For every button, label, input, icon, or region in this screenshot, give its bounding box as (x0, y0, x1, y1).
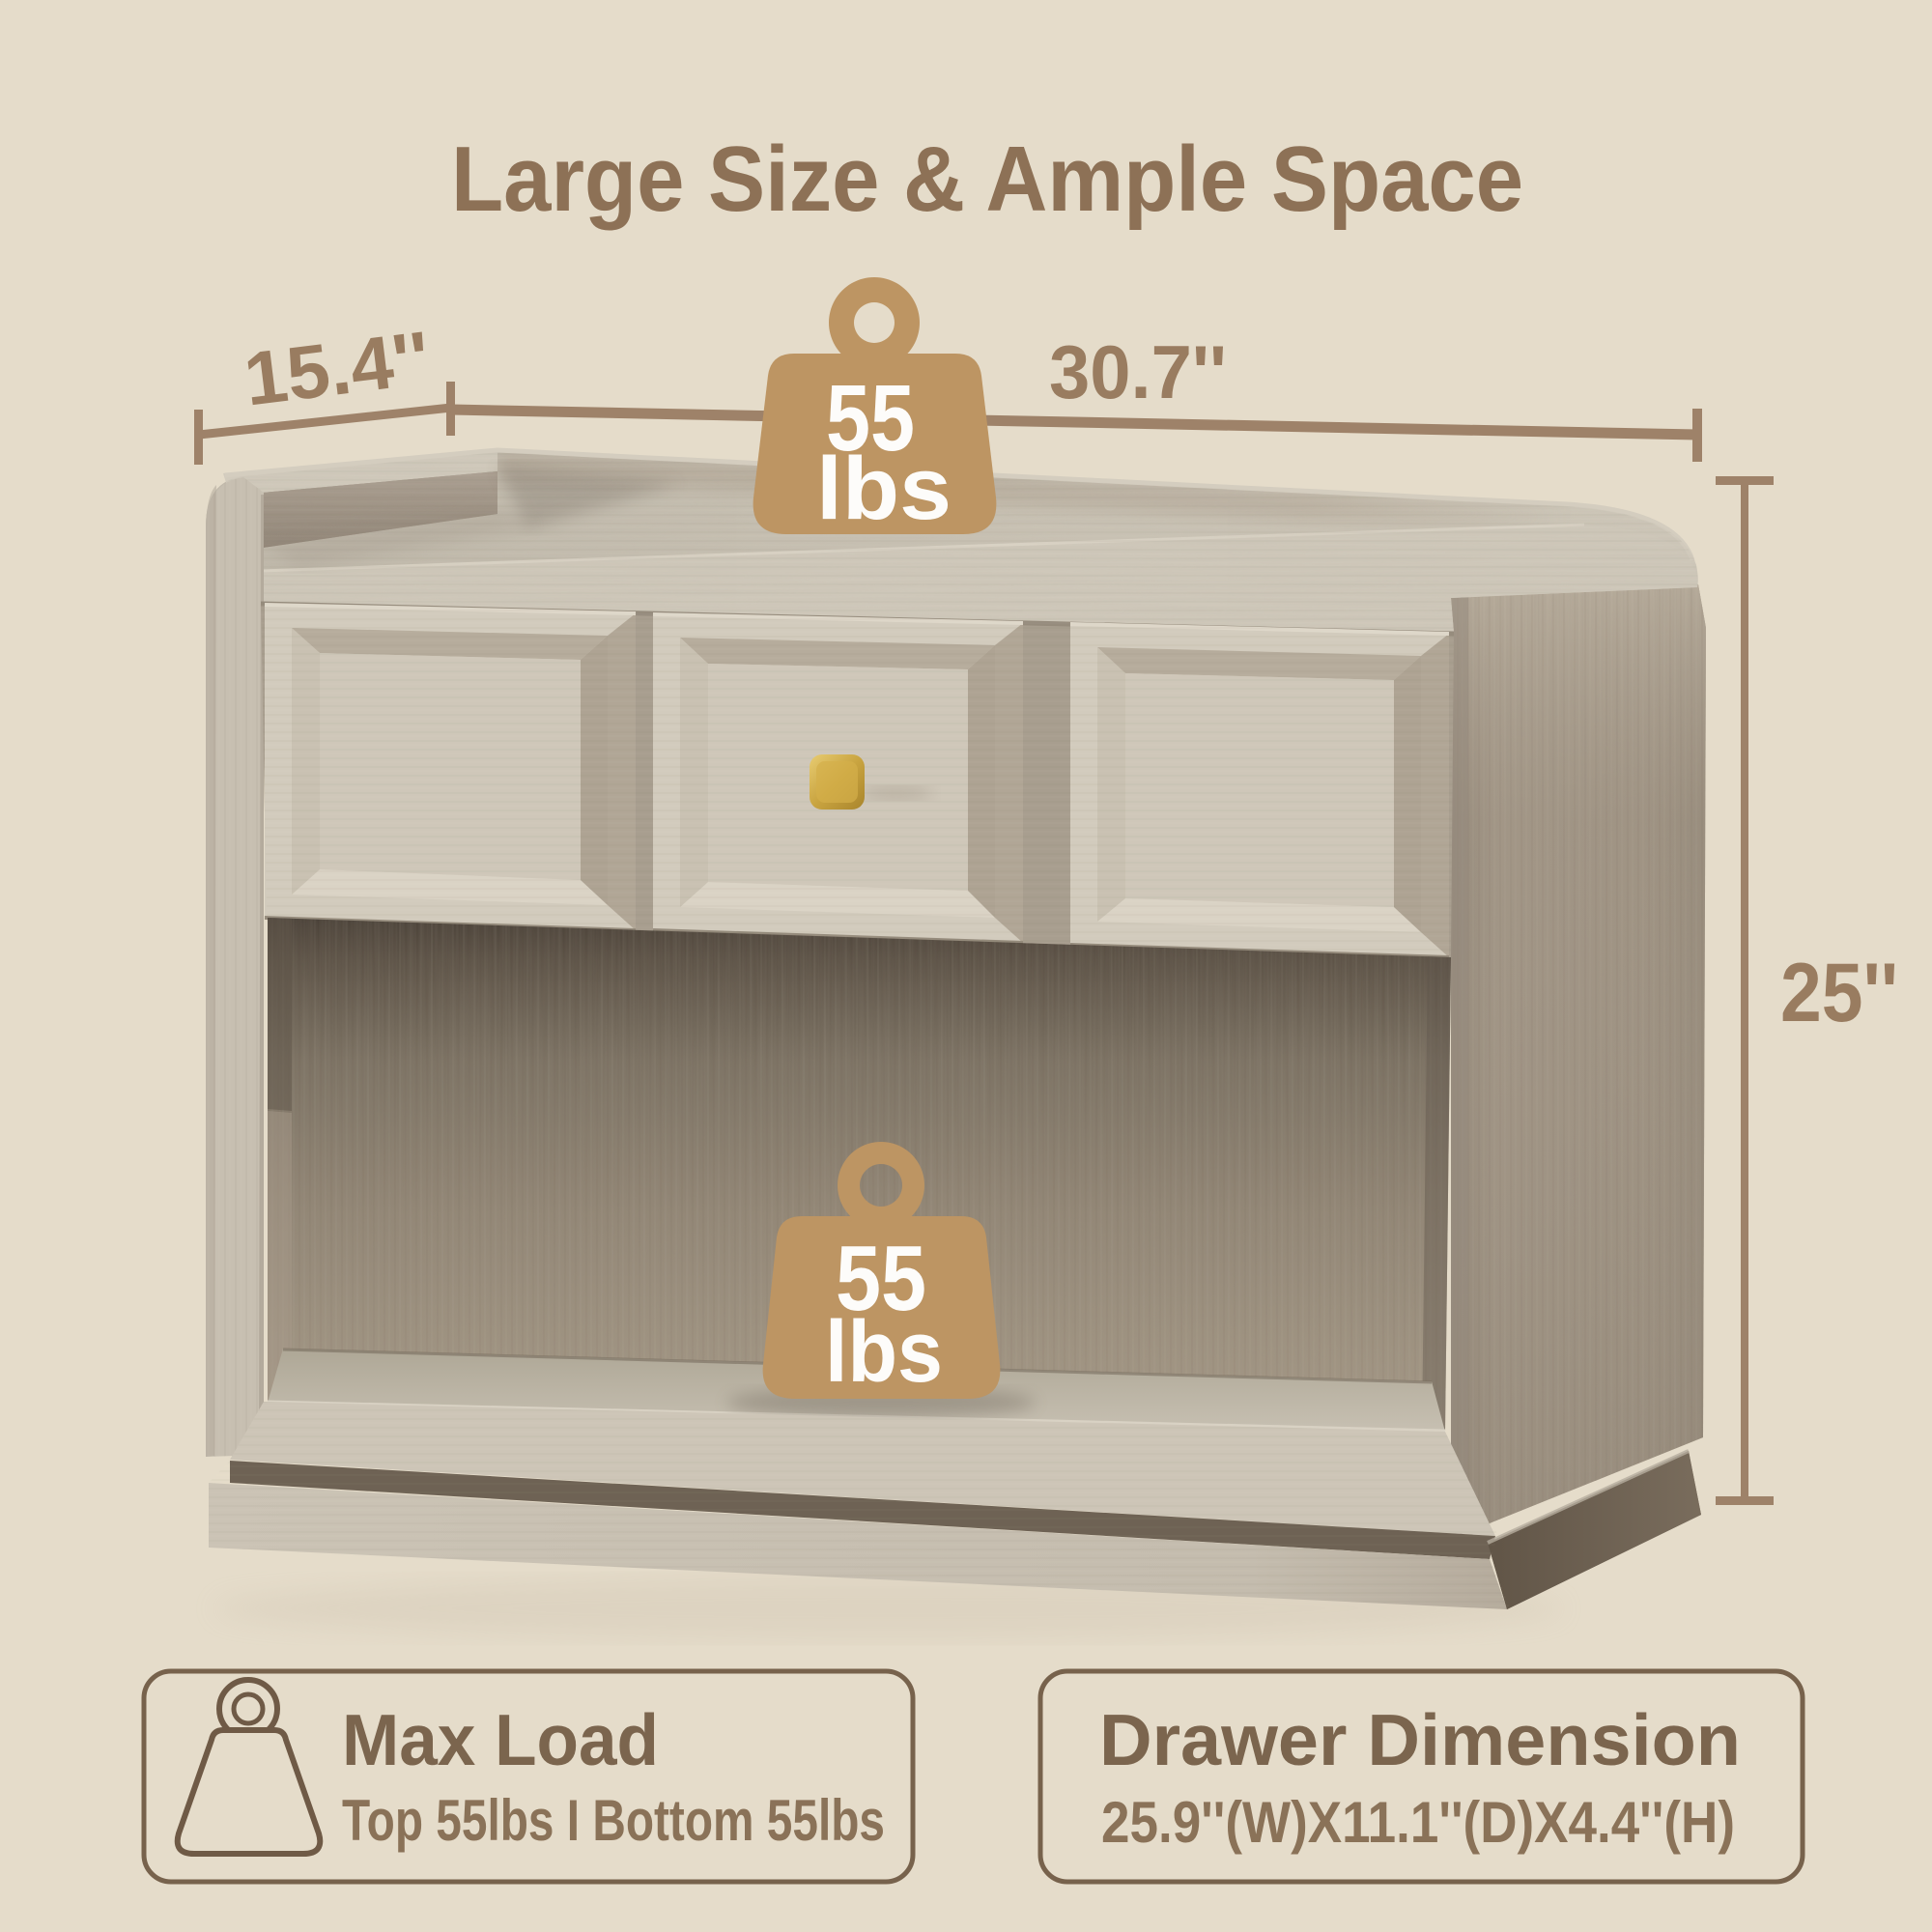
svg-text:Top 55lbs I Bottom 55lbs: Top 55lbs I Bottom 55lbs (342, 1788, 885, 1853)
svg-text:25'': 25'' (1780, 947, 1898, 1039)
svg-text:Large Size & Ample Space: Large Size & Ample Space (451, 128, 1523, 231)
svg-text:lbs: lbs (816, 440, 952, 538)
svg-text:Max Load: Max Load (342, 1699, 659, 1780)
svg-text:Drawer Dimension: Drawer Dimension (1099, 1699, 1741, 1780)
svg-text:lbs: lbs (825, 1304, 943, 1401)
svg-text:30.7'': 30.7'' (1049, 329, 1227, 414)
svg-text:25.9''(W)X11.1''(D)X4.4''(H): 25.9''(W)X11.1''(D)X4.4''(H) (1101, 1790, 1735, 1855)
